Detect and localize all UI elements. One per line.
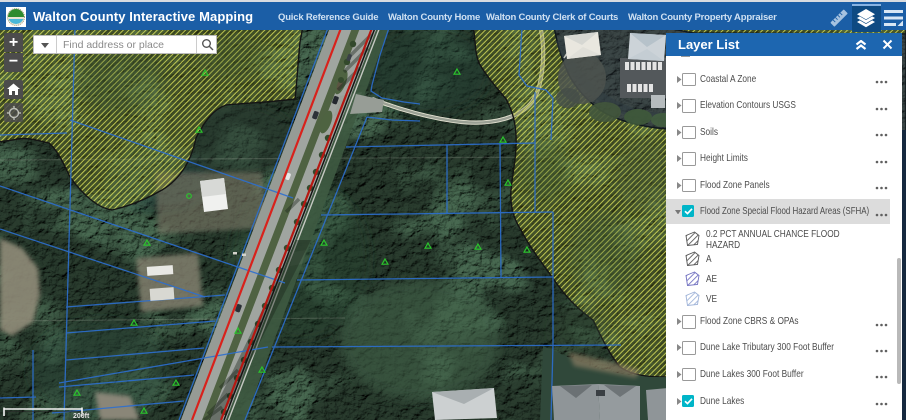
svg-text:200ft: 200ft: [73, 413, 90, 420]
